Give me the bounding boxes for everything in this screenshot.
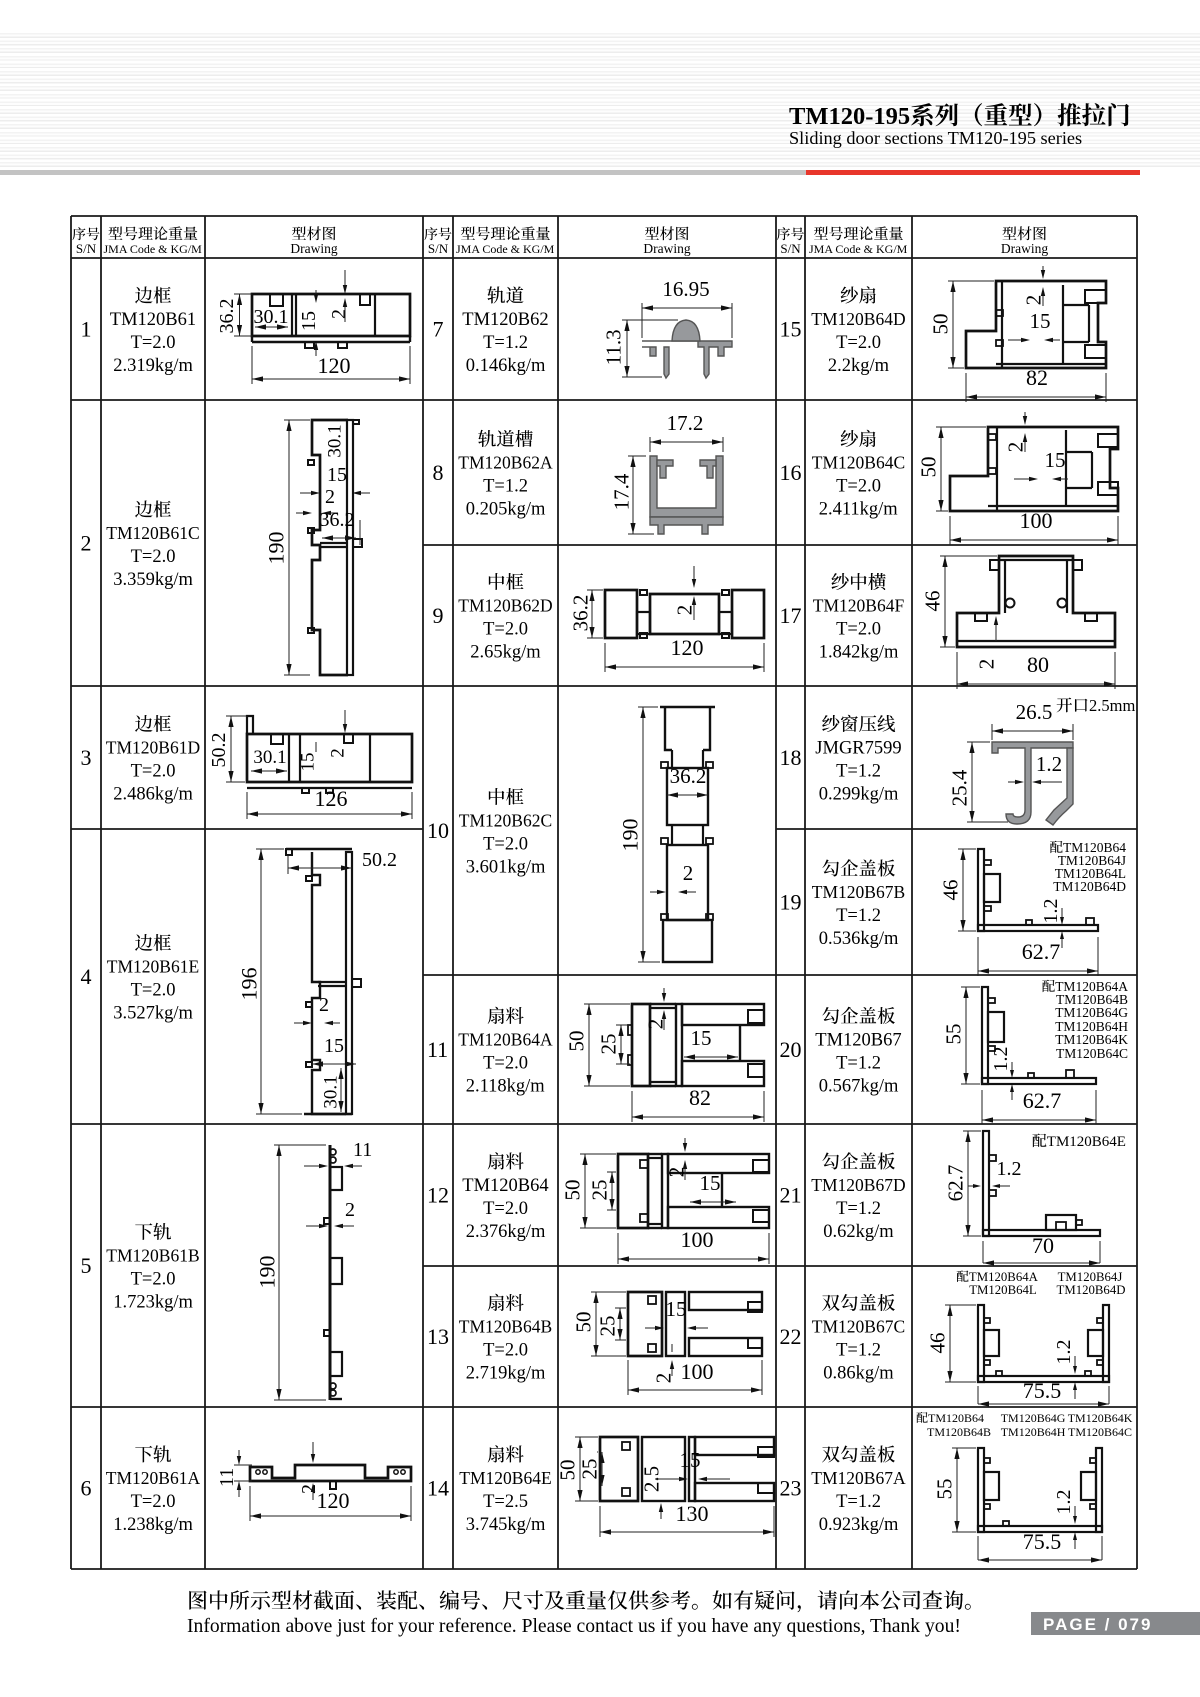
- svg-text:0.205kg/m: 0.205kg/m: [466, 500, 546, 520]
- svg-text:17: 17: [780, 603, 802, 628]
- svg-text:2: 2: [81, 531, 92, 556]
- svg-text:Information above just for you: Information above just for your referenc…: [187, 1616, 961, 1637]
- svg-text:TM120B64D: TM120B64D: [1057, 1283, 1126, 1297]
- svg-text:T=2.0: T=2.0: [131, 547, 176, 567]
- svg-text:TM120B67B: TM120B67B: [812, 882, 905, 902]
- svg-text:190: 190: [618, 819, 643, 852]
- svg-text:T=2.0: T=2.0: [131, 333, 176, 353]
- svg-text:2: 2: [672, 605, 696, 616]
- svg-text:19: 19: [780, 890, 802, 915]
- svg-text:T=1.2: T=1.2: [836, 1492, 881, 1512]
- svg-text:PAGE / 079: PAGE / 079: [1043, 1615, 1152, 1634]
- svg-text:2: 2: [1021, 295, 1045, 306]
- svg-text:T=2.0: T=2.0: [131, 762, 176, 782]
- svg-text:3: 3: [81, 745, 92, 770]
- svg-text:2.65kg/m: 2.65kg/m: [470, 643, 541, 663]
- svg-text:120: 120: [671, 635, 704, 660]
- svg-text:2: 2: [974, 659, 998, 670]
- svg-text:3.527kg/m: 3.527kg/m: [113, 1004, 193, 1024]
- svg-text:14: 14: [427, 1476, 449, 1501]
- svg-text:26.5: 26.5: [1016, 700, 1053, 724]
- svg-text:TM120B62C: TM120B62C: [459, 811, 552, 831]
- svg-text:2: 2: [325, 486, 335, 508]
- svg-text:46: 46: [920, 591, 944, 612]
- svg-text:TM120B64: TM120B64: [462, 1176, 548, 1196]
- svg-text:50.2: 50.2: [208, 733, 230, 768]
- svg-text:13: 13: [427, 1324, 449, 1349]
- svg-text:62.7: 62.7: [1022, 939, 1061, 964]
- svg-text:1.2: 1.2: [997, 1158, 1022, 1180]
- svg-text:30.1: 30.1: [325, 424, 346, 457]
- svg-text:6: 6: [81, 1476, 92, 1501]
- svg-text:TM120B64K: TM120B64K: [1068, 1411, 1133, 1425]
- svg-text:T=2.0: T=2.0: [483, 1199, 528, 1219]
- svg-text:196: 196: [237, 968, 262, 1001]
- svg-text:3.359kg/m: 3.359kg/m: [113, 570, 193, 590]
- svg-text:2: 2: [345, 1199, 355, 1221]
- svg-text:TM120B64C: TM120B64C: [1056, 1046, 1128, 1061]
- svg-text:0.923kg/m: 0.923kg/m: [819, 1515, 899, 1535]
- svg-text:15: 15: [1045, 448, 1066, 472]
- svg-text:50: 50: [916, 457, 940, 478]
- svg-text:JMA Code & KG/M: JMA Code & KG/M: [104, 242, 203, 256]
- svg-text:TM120B62: TM120B62: [462, 310, 548, 330]
- svg-text:50: 50: [555, 1460, 579, 1481]
- svg-text:T=1.2: T=1.2: [836, 1054, 881, 1074]
- svg-text:1.2: 1.2: [1036, 752, 1062, 776]
- svg-text:17.2: 17.2: [667, 411, 704, 435]
- svg-text:2.376kg/m: 2.376kg/m: [466, 1222, 546, 1242]
- svg-text:2: 2: [328, 309, 350, 319]
- svg-text:TM120B64F: TM120B64F: [813, 596, 905, 616]
- svg-text:Drawing: Drawing: [643, 241, 690, 256]
- svg-text:8: 8: [433, 460, 444, 485]
- svg-text:82: 82: [1026, 365, 1048, 390]
- svg-text:T=2.0: T=2.0: [483, 835, 528, 855]
- svg-text:TM120B67D: TM120B67D: [811, 1175, 905, 1195]
- svg-text:TM120B61A: TM120B61A: [106, 1468, 201, 1488]
- svg-text:2.486kg/m: 2.486kg/m: [113, 785, 193, 805]
- svg-text:TM120B64: TM120B64: [928, 1411, 984, 1425]
- svg-text:75.5: 75.5: [1023, 1378, 1062, 1403]
- svg-text:82: 82: [689, 1085, 711, 1110]
- svg-text:15: 15: [700, 1171, 721, 1195]
- svg-text:12: 12: [427, 1183, 449, 1208]
- svg-text:100: 100: [681, 1359, 714, 1384]
- svg-text:T=2.0: T=2.0: [131, 1270, 176, 1290]
- svg-text:11: 11: [216, 1468, 238, 1487]
- svg-text:TM120B62A: TM120B62A: [458, 453, 553, 473]
- svg-text:T=1.2: T=1.2: [836, 906, 881, 926]
- svg-text:T=1.2: T=1.2: [836, 1341, 881, 1361]
- svg-text:120: 120: [317, 1488, 350, 1513]
- svg-text:46: 46: [925, 1333, 949, 1354]
- svg-text:11: 11: [353, 1139, 372, 1161]
- svg-text:S/N: S/N: [428, 241, 449, 256]
- svg-text:TM120B64B: TM120B64B: [459, 1317, 552, 1337]
- svg-text:TM120B64C: TM120B64C: [1068, 1425, 1132, 1439]
- svg-text:15: 15: [327, 464, 347, 486]
- svg-text:2: 2: [328, 748, 349, 758]
- svg-text:TM120B61E: TM120B61E: [107, 957, 199, 977]
- svg-text:0.536kg/m: 0.536kg/m: [819, 929, 899, 949]
- svg-text:1.238kg/m: 1.238kg/m: [113, 1515, 193, 1535]
- svg-text:30.1: 30.1: [321, 1075, 342, 1108]
- svg-text:50: 50: [560, 1180, 584, 1201]
- svg-text:1: 1: [81, 317, 92, 342]
- svg-text:10: 10: [427, 818, 449, 843]
- svg-text:TM120B64C: TM120B64C: [812, 453, 905, 473]
- svg-text:36.2: 36.2: [568, 595, 592, 632]
- svg-text:55: 55: [941, 1024, 965, 1045]
- svg-text:Sliding door sections TM120-19: Sliding door sections TM120-195 series: [789, 128, 1082, 148]
- svg-text:25.4: 25.4: [947, 769, 971, 806]
- svg-text:TM120B61D: TM120B61D: [106, 738, 200, 758]
- svg-text:50: 50: [564, 1031, 588, 1052]
- svg-text:TM120B64G: TM120B64G: [1055, 1005, 1128, 1020]
- svg-text:30.1: 30.1: [254, 306, 289, 328]
- svg-text:TM120B64E: TM120B64E: [459, 1468, 551, 1488]
- svg-text:0.567kg/m: 0.567kg/m: [819, 1077, 899, 1097]
- svg-text:62.7: 62.7: [943, 1165, 967, 1202]
- svg-text:50: 50: [928, 314, 952, 335]
- svg-text:25: 25: [595, 1316, 619, 1337]
- svg-text:4: 4: [81, 964, 92, 989]
- svg-text:190: 190: [255, 1256, 280, 1289]
- svg-text:T=1.2: T=1.2: [836, 1199, 881, 1219]
- svg-text:T=1.2: T=1.2: [483, 477, 528, 497]
- svg-text:15: 15: [680, 1448, 701, 1472]
- svg-text:16: 16: [780, 460, 802, 485]
- svg-text:S/N: S/N: [76, 241, 97, 256]
- svg-text:T=2.5: T=2.5: [483, 1492, 528, 1512]
- svg-text:15: 15: [324, 1035, 344, 1057]
- svg-text:5: 5: [81, 1253, 92, 1278]
- svg-text:2: 2: [1003, 442, 1027, 453]
- svg-text:0.299kg/m: 0.299kg/m: [819, 785, 899, 805]
- svg-text:T=2.0: T=2.0: [483, 1341, 528, 1361]
- svg-text:T=2.0: T=2.0: [483, 620, 528, 640]
- svg-text:75.5: 75.5: [1023, 1529, 1062, 1554]
- svg-text:Drawing: Drawing: [1001, 241, 1048, 256]
- svg-text:2: 2: [319, 994, 329, 1016]
- svg-text:TM120B64D: TM120B64D: [1053, 879, 1126, 894]
- svg-text:2.319kg/m: 2.319kg/m: [113, 356, 193, 376]
- svg-text:T=2.0: T=2.0: [836, 477, 881, 497]
- svg-text:2: 2: [683, 861, 694, 885]
- svg-text:55: 55: [932, 1479, 956, 1500]
- svg-text:15: 15: [666, 1297, 687, 1321]
- svg-text:11.3: 11.3: [601, 329, 625, 365]
- svg-text:80: 80: [1027, 652, 1049, 677]
- svg-text:TM120B67: TM120B67: [815, 1031, 901, 1051]
- svg-text:17.4: 17.4: [609, 473, 633, 510]
- svg-text:TM120B62D: TM120B62D: [458, 596, 552, 616]
- svg-text:100: 100: [1020, 508, 1053, 533]
- svg-text:36.2: 36.2: [216, 299, 238, 334]
- svg-text:126: 126: [315, 786, 348, 811]
- svg-text:TM120B64B: TM120B64B: [927, 1425, 991, 1439]
- svg-text:T=2.0: T=2.0: [131, 1492, 176, 1512]
- svg-text:T=2.0: T=2.0: [836, 620, 881, 640]
- svg-text:TM120B64E: TM120B64E: [1047, 1134, 1126, 1150]
- svg-text:0.86kg/m: 0.86kg/m: [823, 1364, 894, 1384]
- svg-text:16.95: 16.95: [662, 277, 709, 301]
- svg-text:TM120B67C: TM120B67C: [812, 1317, 905, 1337]
- svg-text:JMA Code & KG/M: JMA Code & KG/M: [456, 242, 555, 256]
- svg-text:TM120B61C: TM120B61C: [106, 523, 199, 543]
- svg-text:1.2: 1.2: [1040, 899, 1062, 924]
- svg-text:T=2.0: T=2.0: [131, 981, 176, 1001]
- svg-text:2.719kg/m: 2.719kg/m: [466, 1364, 546, 1384]
- svg-text:TM120B64G: TM120B64G: [1001, 1411, 1066, 1425]
- svg-text:1.723kg/m: 1.723kg/m: [113, 1293, 193, 1313]
- svg-text:23: 23: [780, 1476, 802, 1501]
- svg-text:22: 22: [780, 1324, 802, 1349]
- svg-text:7: 7: [433, 317, 444, 342]
- svg-text:T=2.0: T=2.0: [836, 333, 881, 353]
- svg-text:62.7: 62.7: [1023, 1088, 1062, 1113]
- svg-text:36.2: 36.2: [670, 764, 707, 788]
- svg-text:TM120B64A: TM120B64A: [969, 1270, 1039, 1284]
- svg-text:21: 21: [780, 1183, 802, 1208]
- svg-text:TM120B61B: TM120B61B: [106, 1246, 199, 1266]
- svg-text:11: 11: [427, 1037, 448, 1062]
- svg-text:9: 9: [433, 603, 444, 628]
- svg-text:70: 70: [1032, 1233, 1054, 1258]
- svg-text:T=2.0: T=2.0: [483, 1054, 528, 1074]
- svg-text:1.2: 1.2: [1053, 1490, 1075, 1515]
- svg-text:JMA Code & KG/M: JMA Code & KG/M: [809, 242, 908, 256]
- svg-text:TM120B61: TM120B61: [110, 310, 196, 330]
- svg-text:46: 46: [938, 880, 962, 901]
- svg-text:TM120B67A: TM120B67A: [811, 1468, 906, 1488]
- svg-text:2.118kg/m: 2.118kg/m: [466, 1077, 546, 1097]
- svg-text:15: 15: [691, 1026, 712, 1050]
- svg-text:15: 15: [298, 753, 319, 772]
- svg-text:TM120B64L: TM120B64L: [969, 1283, 1037, 1297]
- svg-text:190: 190: [264, 532, 289, 565]
- svg-text:50.2: 50.2: [362, 849, 397, 871]
- svg-text:0.146kg/m: 0.146kg/m: [466, 356, 546, 376]
- svg-text:T=1.2: T=1.2: [483, 333, 528, 353]
- svg-text:3.745kg/m: 3.745kg/m: [466, 1515, 546, 1535]
- svg-text:0.62kg/m: 0.62kg/m: [823, 1222, 894, 1242]
- svg-text:TM120B64D: TM120B64D: [811, 309, 905, 329]
- svg-text:30.1: 30.1: [253, 747, 286, 768]
- svg-text:1.2: 1.2: [1053, 1340, 1075, 1365]
- svg-text:TM120B64A: TM120B64A: [458, 1030, 553, 1050]
- svg-text:100: 100: [681, 1227, 714, 1252]
- svg-text:TM120B64J: TM120B64J: [1058, 1270, 1123, 1284]
- svg-text:Drawing: Drawing: [290, 241, 337, 256]
- svg-text:25: 25: [577, 1459, 601, 1480]
- svg-text:36.2: 36.2: [320, 509, 355, 531]
- svg-text:25: 25: [587, 1180, 611, 1201]
- svg-text:TM120-195: TM120-195: [789, 103, 910, 130]
- svg-text:18: 18: [780, 745, 802, 770]
- svg-text:50: 50: [571, 1312, 595, 1333]
- svg-text:20: 20: [780, 1037, 802, 1062]
- svg-text:TM120B64K: TM120B64K: [1055, 1032, 1128, 1047]
- svg-text:TM120B64H: TM120B64H: [1001, 1425, 1066, 1439]
- svg-text:S/N: S/N: [780, 241, 801, 256]
- svg-text:3.601kg/m: 3.601kg/m: [466, 858, 546, 878]
- svg-text:15: 15: [780, 317, 802, 342]
- svg-text:130: 130: [676, 1501, 709, 1526]
- svg-text:JMGR7599: JMGR7599: [815, 739, 901, 759]
- svg-text:T=1.2: T=1.2: [836, 762, 881, 782]
- svg-text:25: 25: [596, 1034, 620, 1055]
- svg-text:1.842kg/m: 1.842kg/m: [819, 643, 899, 663]
- svg-text:2.5mm: 2.5mm: [1089, 696, 1135, 715]
- svg-text:15: 15: [298, 311, 320, 331]
- svg-text:15: 15: [1030, 309, 1051, 333]
- svg-text:1.2: 1.2: [990, 1047, 1012, 1072]
- svg-text:120: 120: [318, 353, 351, 378]
- svg-text:2.2kg/m: 2.2kg/m: [828, 356, 890, 376]
- svg-text:2.411kg/m: 2.411kg/m: [819, 500, 899, 520]
